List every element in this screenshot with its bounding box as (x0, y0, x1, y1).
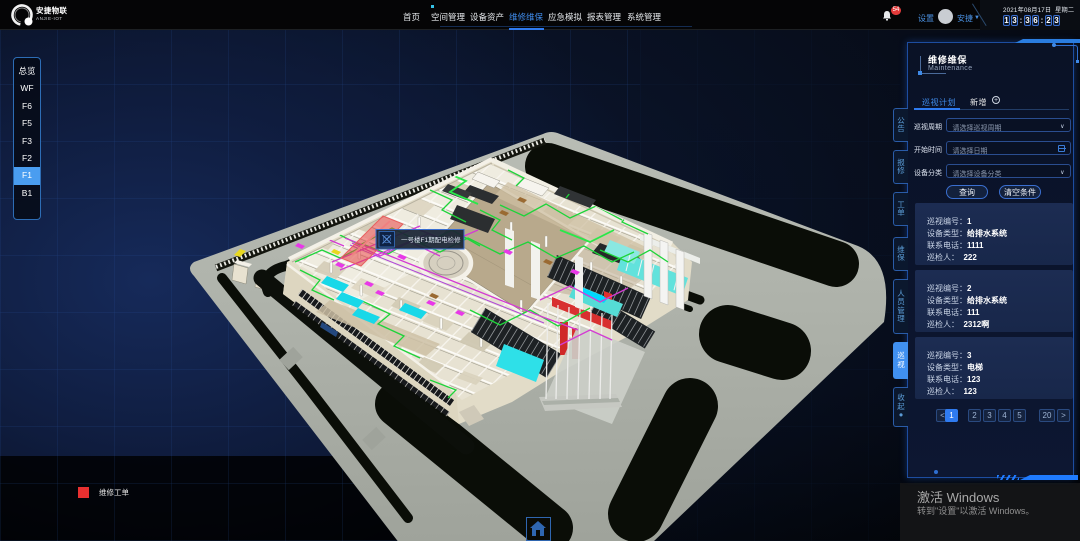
svg-text:一号楼F1期配电检修: 一号楼F1期配电检修 (401, 235, 461, 244)
